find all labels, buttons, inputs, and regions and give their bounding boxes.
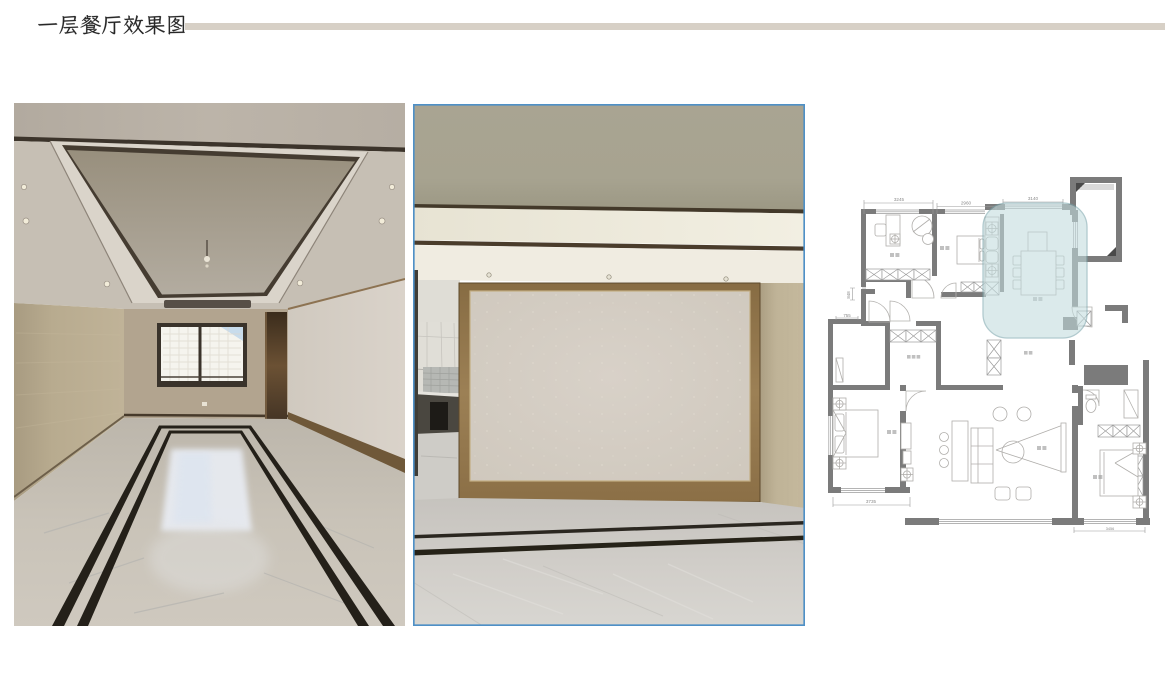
svg-text:3245: 3245	[894, 197, 905, 202]
svg-text:755: 755	[843, 313, 851, 318]
svg-text:3735: 3735	[866, 499, 877, 504]
svg-text:2960: 2960	[961, 201, 972, 206]
svg-text:848: 848	[846, 291, 851, 299]
svg-text:3140: 3140	[1028, 196, 1039, 201]
svg-text:3456: 3456	[1106, 527, 1114, 531]
